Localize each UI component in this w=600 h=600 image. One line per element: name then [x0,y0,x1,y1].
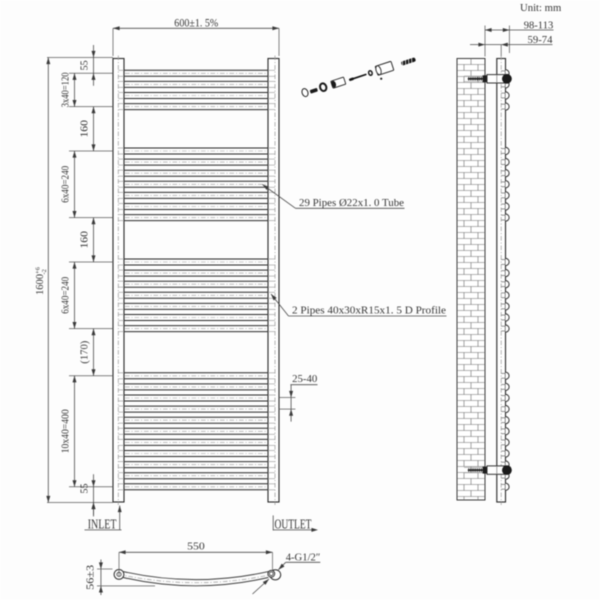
svg-text:(170): (170) [80,341,91,364]
svg-text:160: 160 [80,120,91,138]
svg-text:10x40=400: 10x40=400 [61,409,72,453]
svg-text:550: 550 [187,541,205,553]
svg-text:1600+6-2: 1600+6-2 [35,266,49,295]
svg-text:Unit: mm: Unit: mm [520,2,562,14]
svg-text:98-113: 98-113 [524,19,554,31]
svg-text:59-74: 59-74 [528,34,553,46]
svg-text:29 Pipes Ø22x1. 0 Tube: 29 Pipes Ø22x1. 0 Tube [299,197,404,209]
svg-text:6x40=240: 6x40=240 [61,166,72,203]
svg-text:160: 160 [80,231,91,249]
svg-text:56±3: 56±3 [86,565,97,590]
svg-text:6x40=240: 6x40=240 [61,277,72,314]
svg-text:INLET: INLET [88,518,117,533]
svg-text:25-40: 25-40 [292,373,318,385]
svg-text:600±1. 5%: 600±1. 5% [174,16,218,30]
svg-text:2 Pipes 40x30xR15x1. 5 D Profi: 2 Pipes 40x30xR15x1. 5 D Profile [292,305,446,317]
svg-text:OUTLET: OUTLET [275,518,312,533]
svg-text:3x40=120: 3x40=120 [61,72,72,107]
svg-text:55: 55 [80,60,91,70]
svg-text:4-G1/2″: 4-G1/2″ [286,551,321,563]
svg-text:55: 55 [80,484,91,494]
